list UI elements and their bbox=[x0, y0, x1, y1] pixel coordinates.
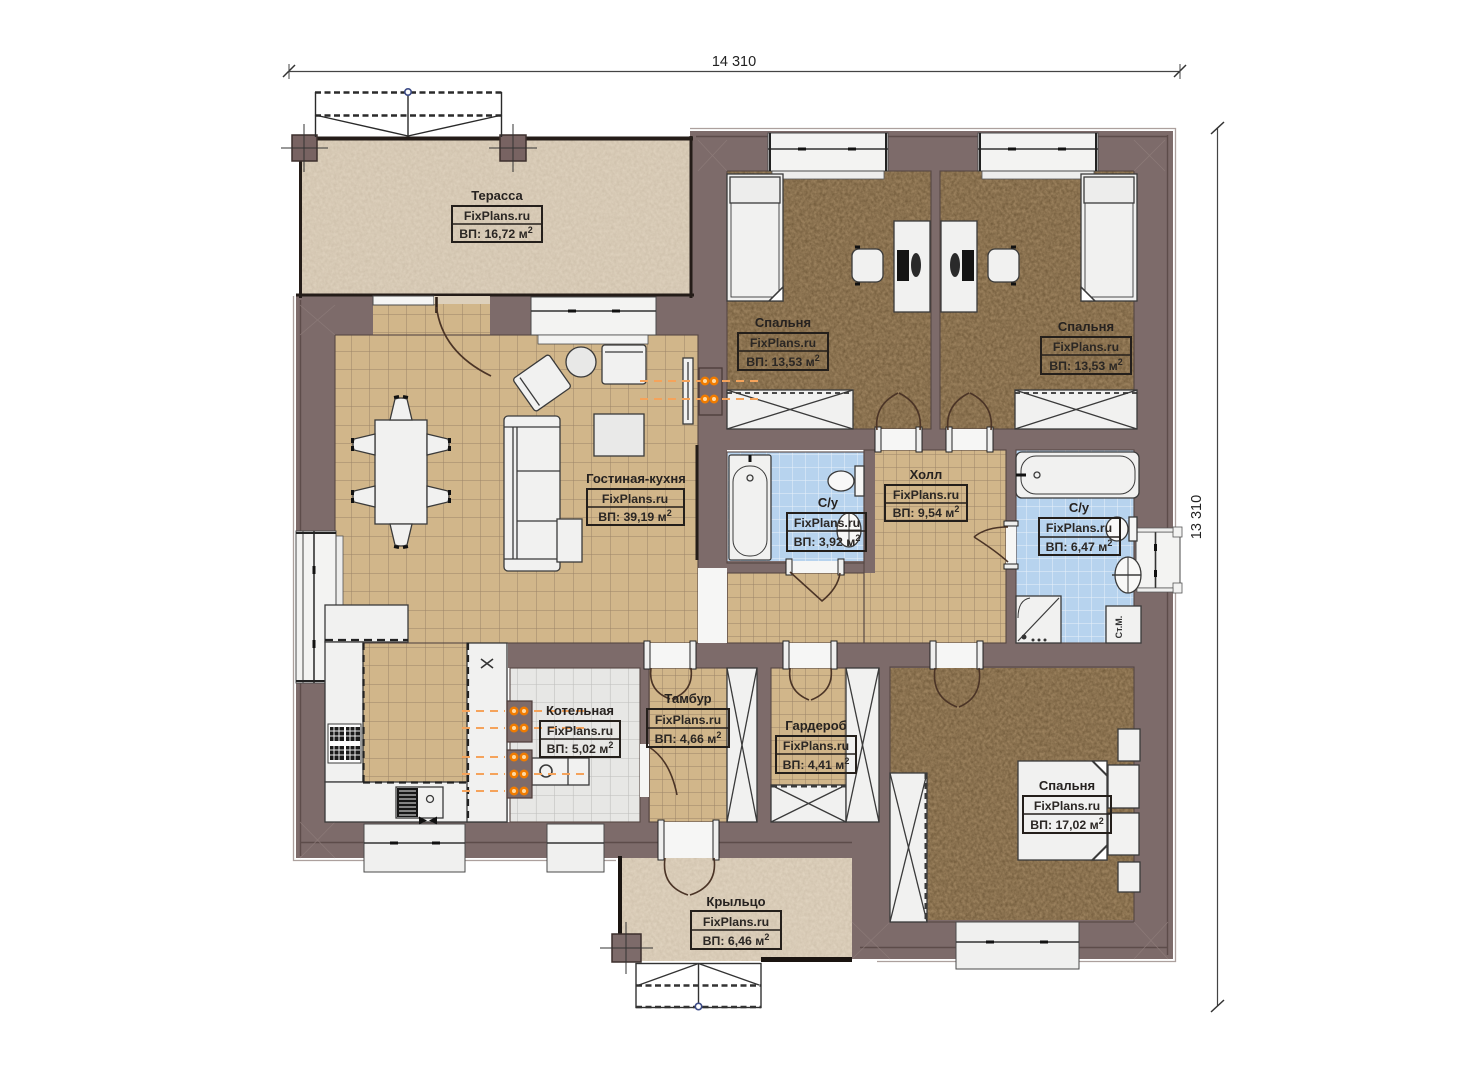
svg-text:Спальня: Спальня bbox=[1039, 778, 1095, 793]
svg-text:13 310: 13 310 bbox=[1189, 495, 1205, 539]
svg-text:FixPlans.ru: FixPlans.ru bbox=[464, 209, 530, 223]
svg-text:ВП: 13,53 м2: ВП: 13,53 м2 bbox=[1049, 357, 1123, 373]
svg-text:ВП: 4,66 м2: ВП: 4,66 м2 bbox=[655, 730, 722, 746]
svg-text:FixPlans.ru: FixPlans.ru bbox=[794, 516, 860, 530]
svg-text:FixPlans.ru: FixPlans.ru bbox=[655, 713, 721, 727]
svg-text:Ст.М.: Ст.М. bbox=[1114, 616, 1124, 639]
svg-text:FixPlans.ru: FixPlans.ru bbox=[547, 724, 613, 738]
svg-text:ВП: 13,53 м2: ВП: 13,53 м2 bbox=[746, 353, 820, 369]
svg-text:Спальня: Спальня bbox=[1058, 319, 1114, 334]
svg-text:ВП: 4,41 м2: ВП: 4,41 м2 bbox=[783, 756, 850, 772]
svg-text:FixPlans.ru: FixPlans.ru bbox=[1034, 799, 1100, 813]
svg-text:С/у: С/у bbox=[1069, 500, 1090, 515]
svg-text:FixPlans.ru: FixPlans.ru bbox=[893, 488, 959, 502]
svg-text:FixPlans.ru: FixPlans.ru bbox=[1053, 340, 1119, 354]
svg-text:ВП: 9,54 м2: ВП: 9,54 м2 bbox=[893, 504, 960, 520]
svg-text:Гостиная-кухня: Гостиная-кухня bbox=[586, 471, 686, 486]
svg-text:FixPlans.ru: FixPlans.ru bbox=[703, 915, 769, 929]
svg-text:Холл: Холл bbox=[910, 467, 943, 482]
svg-text:Тамбур: Тамбур bbox=[664, 691, 711, 706]
svg-text:FixPlans.ru: FixPlans.ru bbox=[750, 336, 816, 350]
svg-text:ВП: 5,02 м2: ВП: 5,02 м2 bbox=[547, 740, 614, 756]
svg-text:С/у: С/у bbox=[818, 495, 839, 510]
svg-text:ВП: 3,92 м2: ВП: 3,92 м2 bbox=[794, 533, 861, 549]
svg-text:Крыльцо: Крыльцо bbox=[706, 894, 765, 909]
svg-text:Гардероб: Гардероб bbox=[785, 718, 846, 733]
svg-text:ВП: 16,72 м2: ВП: 16,72 м2 bbox=[459, 225, 533, 241]
svg-text:Котельная: Котельная bbox=[546, 703, 614, 718]
svg-text:ВП: 17,02 м2: ВП: 17,02 м2 bbox=[1030, 816, 1104, 832]
svg-text:ВП: 6,47 м2: ВП: 6,47 м2 bbox=[1046, 538, 1113, 554]
svg-text:Терасса: Терасса bbox=[471, 188, 523, 203]
svg-text:FixPlans.ru: FixPlans.ru bbox=[783, 739, 849, 753]
svg-text:14 310: 14 310 bbox=[712, 54, 756, 70]
svg-text:Спальня: Спальня bbox=[755, 315, 811, 330]
svg-text:FixPlans.ru: FixPlans.ru bbox=[1046, 521, 1112, 535]
svg-text:FixPlans.ru: FixPlans.ru bbox=[602, 492, 668, 506]
svg-text:ВП: 39,19 м2: ВП: 39,19 м2 bbox=[598, 508, 672, 524]
svg-text:ВП: 6,46 м2: ВП: 6,46 м2 bbox=[703, 932, 770, 948]
